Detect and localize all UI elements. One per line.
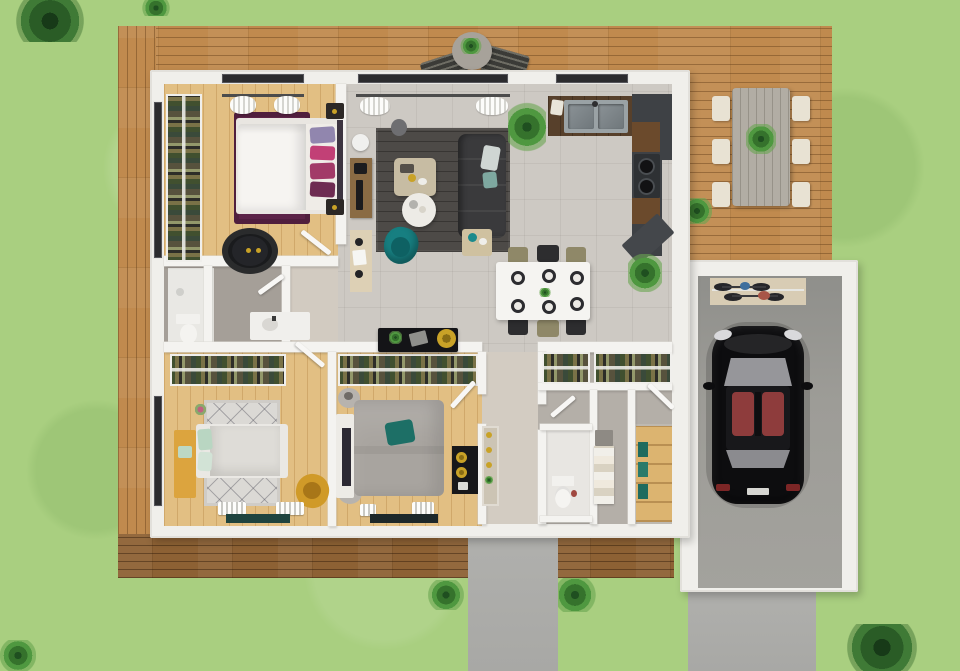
bedroom2-desk <box>174 430 196 498</box>
master-tub-tap-1 <box>246 248 251 253</box>
master-tub-tap-2 <box>256 248 261 253</box>
hanging-plant <box>508 102 546 152</box>
ladder-shelf-plant <box>485 476 493 484</box>
wall-wc-north <box>540 424 592 430</box>
car-rear-window <box>726 450 790 468</box>
patio-chair-6 <box>792 182 810 207</box>
curtain-living-1 <box>360 97 390 115</box>
wc-toilet-brush <box>571 490 577 497</box>
workbench <box>710 278 806 305</box>
bedroom2-pillow-2 <box>197 452 212 472</box>
bedroom3-window-sill <box>370 514 438 523</box>
plate-2 <box>542 269 556 283</box>
patio-chair-4 <box>792 96 810 121</box>
bedroom3-rug-item-1 <box>344 392 353 400</box>
window-bedroom2-left <box>154 396 162 506</box>
closet-hall-2 <box>594 352 672 384</box>
driveway-garage <box>688 586 816 671</box>
sink-faucet <box>592 101 598 107</box>
ensuite-vanity <box>250 312 310 340</box>
deck-table-plant <box>460 38 482 54</box>
side-table-vase <box>468 233 477 242</box>
bathroom-art <box>595 430 613 446</box>
closet-bedroom2 <box>170 354 286 386</box>
curtain-living-2 <box>476 97 508 115</box>
ladder-shelf-gold-3 <box>486 462 492 468</box>
wall-bath-vertical-2 <box>628 390 635 524</box>
bike-2-bag <box>758 291 770 300</box>
wall-mid-east <box>538 342 672 352</box>
path-front-door <box>468 534 558 671</box>
ensuite-shower-drain <box>176 288 184 296</box>
sink-basin-left <box>568 104 594 129</box>
stove-burner-1 <box>638 158 655 175</box>
patio-chair-1 <box>712 96 730 121</box>
ensuite-tap <box>272 316 276 321</box>
plate-6 <box>570 297 584 311</box>
cabinet-paper <box>352 249 366 265</box>
grass-tuft-lawn-2 <box>554 578 596 612</box>
kitchen-wood-shelf-1 <box>632 122 660 152</box>
grass-tuft-top <box>140 0 172 16</box>
car-seat-left <box>732 392 754 436</box>
car-taillight-right <box>786 484 800 491</box>
bedroom2-window-sill <box>226 514 290 523</box>
ladder-shelf-gold-2 <box>486 447 492 453</box>
car-hood-shine <box>724 334 792 354</box>
entry-plant <box>628 254 662 292</box>
bedroom2-duvet <box>210 426 280 476</box>
bedroom2-armchair-seat <box>303 482 321 499</box>
car-mirror-left <box>703 382 715 390</box>
plate-3 <box>570 271 584 285</box>
window-living-top <box>358 74 508 83</box>
plate-5 <box>542 300 556 314</box>
wall-wc-south <box>540 516 592 522</box>
bedroom3-desk-item <box>458 482 468 490</box>
cabinet-knob-2 <box>355 270 363 278</box>
dining-chair-6 <box>566 318 586 335</box>
coffee-table-cup <box>418 178 427 185</box>
bedroom2-pillow-1 <box>197 428 213 450</box>
patio-plant <box>746 124 776 154</box>
closet-hall-1 <box>542 352 590 384</box>
wc-toilet-bowl <box>555 486 571 508</box>
deck-bottom-right <box>556 534 674 578</box>
car-console <box>755 392 761 436</box>
master-bed-duvet <box>238 124 306 210</box>
towel-shelf <box>594 446 614 504</box>
media-shelf-bowl <box>437 329 456 348</box>
console-decor-2 <box>356 180 363 210</box>
ensuite-toilet-tank <box>176 314 200 324</box>
living-side-table <box>462 229 492 256</box>
bedroom3-headboard-panel <box>342 428 351 486</box>
bedroom2-flowers <box>195 404 206 415</box>
bedroom3-gold-plate-1 <box>456 452 467 463</box>
window-kitchen-top <box>556 74 628 83</box>
grass-tuft-bottom-left <box>0 640 36 671</box>
wall-ensuite-a <box>204 266 212 348</box>
patio-chair-2 <box>712 139 730 164</box>
dining-chair-4 <box>508 318 528 335</box>
sink-basin-right <box>598 104 624 129</box>
nightstand-1-lamp <box>332 109 337 114</box>
laundry-teal-box-1 <box>638 442 648 457</box>
bike-2-frame <box>732 295 778 297</box>
coffee-table-kettle <box>408 174 416 182</box>
wall-bd3-hall-a <box>478 352 486 394</box>
living-planter <box>391 119 407 136</box>
bedroom3-duvet-fold <box>354 446 444 454</box>
round-table-cup <box>419 206 426 213</box>
plate-4 <box>511 299 525 313</box>
bedroom3-gold-plate-2 <box>456 467 467 478</box>
master-pillow-3 <box>310 163 336 180</box>
round-table-plate <box>409 200 418 209</box>
closet-master <box>166 94 202 262</box>
window-master-top <box>222 74 304 83</box>
bush-top-left <box>14 0 86 42</box>
ensuite-toilet-bowl <box>180 324 197 344</box>
nightstand-2-lamp <box>332 205 337 210</box>
curtain-master-2 <box>274 96 300 114</box>
coffee-table-tray <box>400 164 414 173</box>
deck-bottom-left <box>118 534 470 578</box>
master-pillow-1 <box>309 126 335 144</box>
patio-chair-3 <box>712 182 730 207</box>
car-plate <box>747 488 769 495</box>
bedroom2-desk-item <box>178 446 192 458</box>
dining-centerpiece <box>539 288 551 297</box>
media-shelf-plant <box>389 331 402 344</box>
master-pillow-2 <box>310 146 335 161</box>
tree-bottom-right <box>846 624 918 671</box>
floor-lamp <box>352 134 369 151</box>
car-windshield <box>724 358 792 386</box>
patio-chair-5 <box>792 139 810 164</box>
cutting-board <box>550 99 564 116</box>
laundry-teal-box-3 <box>638 484 648 499</box>
curtain-master-1 <box>230 96 256 114</box>
floor-plan-scene <box>0 0 960 671</box>
bike-1-seat <box>740 282 750 290</box>
wall-hall-bath-b <box>538 430 546 524</box>
car-mirror-right <box>801 382 813 390</box>
plate-1 <box>511 271 525 285</box>
window-master-left <box>154 102 162 258</box>
laundry-teal-box-2 <box>638 462 648 477</box>
wc-toilet-tank <box>552 476 574 486</box>
teal-armchair-seat <box>391 237 410 257</box>
dining-chair-5 <box>537 320 559 337</box>
ladder-shelf-gold-1 <box>486 432 492 438</box>
dining-chair-2 <box>537 245 559 262</box>
car-taillight-left <box>716 484 730 491</box>
bedroom3-pillow <box>384 419 416 447</box>
closet-bedroom3 <box>338 354 478 386</box>
master-pillow-4 <box>310 181 336 197</box>
grass-tuft-lawn-1 <box>428 580 464 610</box>
cabinet-knob-1 <box>355 238 363 246</box>
wall-bd2-bd3 <box>328 352 336 526</box>
sofa-pillow-teal <box>482 171 498 188</box>
car-seat-right <box>762 392 784 436</box>
side-table-cup <box>479 238 487 245</box>
console-decor-1 <box>354 163 367 174</box>
stove-burner-2 <box>638 178 655 195</box>
